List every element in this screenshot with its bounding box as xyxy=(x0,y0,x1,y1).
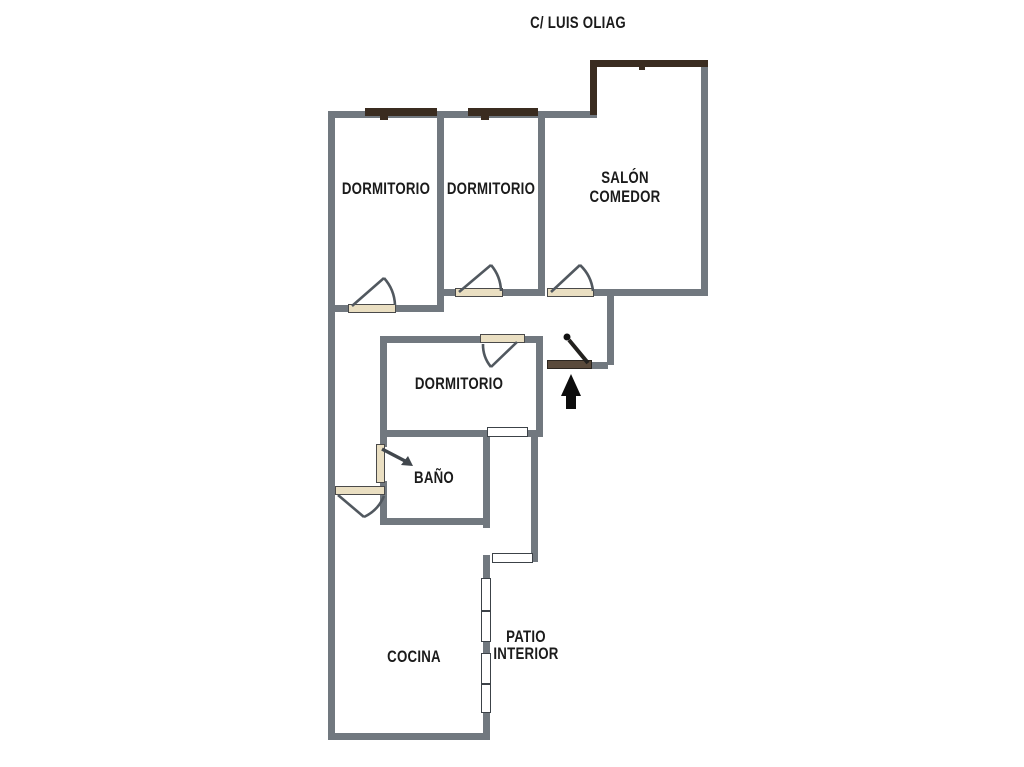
door-opening-sill xyxy=(376,444,385,483)
room-label-patio-interior: PATIO INTERIOR xyxy=(493,628,558,662)
street-window-bar xyxy=(365,108,437,116)
wall-segment xyxy=(328,733,490,740)
room-label-dormitorio-2: DORMITORIO xyxy=(447,179,535,199)
door-leaf-tip xyxy=(401,456,413,466)
floor-plan-canvas: C/ LUIS OLIAG DORMITORIO DORMITORIO SALÓ… xyxy=(0,0,1024,767)
room-label-bano: BAÑO xyxy=(414,468,454,488)
door-opening-sill xyxy=(480,334,525,343)
door-opening-sill xyxy=(547,288,594,297)
wall-segment xyxy=(483,437,490,528)
door-leaf xyxy=(382,449,407,462)
door-opening-sill xyxy=(455,288,503,297)
door-arc xyxy=(384,278,395,305)
interior-window-bar xyxy=(492,553,533,563)
room-label-dormitorio-1: DORMITORIO xyxy=(342,179,430,199)
door-leaf xyxy=(352,278,384,306)
street-window-tick xyxy=(639,66,645,70)
wall-segment xyxy=(380,336,482,343)
wall-segment xyxy=(592,362,608,369)
street-window-bar xyxy=(590,60,708,67)
room-label-salon-comedor: SALÓN COMEDOR xyxy=(590,168,661,206)
wall-segment xyxy=(531,430,538,562)
wall-segment xyxy=(483,642,490,653)
entrance-door-knob xyxy=(564,334,571,341)
salon-label-line2: COMEDOR xyxy=(590,187,661,206)
door-arc xyxy=(483,344,491,367)
interior-window-bar xyxy=(487,427,528,437)
street-window-tick xyxy=(380,116,388,120)
wall-segment xyxy=(328,111,335,740)
door-leaf xyxy=(338,495,364,517)
room-label-dormitorio-3: DORMITORIO xyxy=(415,374,503,394)
wall-segment xyxy=(607,289,614,365)
room-label-cocina: COCINA xyxy=(387,647,441,667)
door-opening-sill xyxy=(348,304,396,313)
wall-segment xyxy=(437,111,444,312)
wall-segment xyxy=(380,430,489,437)
street-window-tick xyxy=(481,116,489,120)
wall-segment xyxy=(437,289,455,296)
wall-segment xyxy=(503,289,545,296)
patio-label-line2: INTERIOR xyxy=(493,645,558,662)
wall-segment xyxy=(536,336,543,437)
street-window-bar xyxy=(590,60,597,115)
wall-segment xyxy=(701,60,708,296)
patio-label-line1: PATIO xyxy=(493,628,558,645)
salon-label-line1: SALÓN xyxy=(590,168,661,187)
wall-segment xyxy=(328,305,350,312)
door-leaf xyxy=(491,342,517,367)
wall-segment xyxy=(380,336,387,437)
wall-segment xyxy=(483,555,490,580)
street-name-label: C/ LUIS OLIAG xyxy=(530,13,626,33)
interior-window-tick xyxy=(481,610,491,612)
entrance-threshold xyxy=(547,360,592,369)
door-opening-sill xyxy=(335,486,385,495)
interior-window-tick xyxy=(481,683,491,685)
wall-segment xyxy=(380,518,490,525)
street-window-bar xyxy=(468,108,538,116)
wall-segment xyxy=(538,111,545,296)
entrance-arrow-icon xyxy=(561,374,581,409)
wall-segment xyxy=(396,305,444,312)
